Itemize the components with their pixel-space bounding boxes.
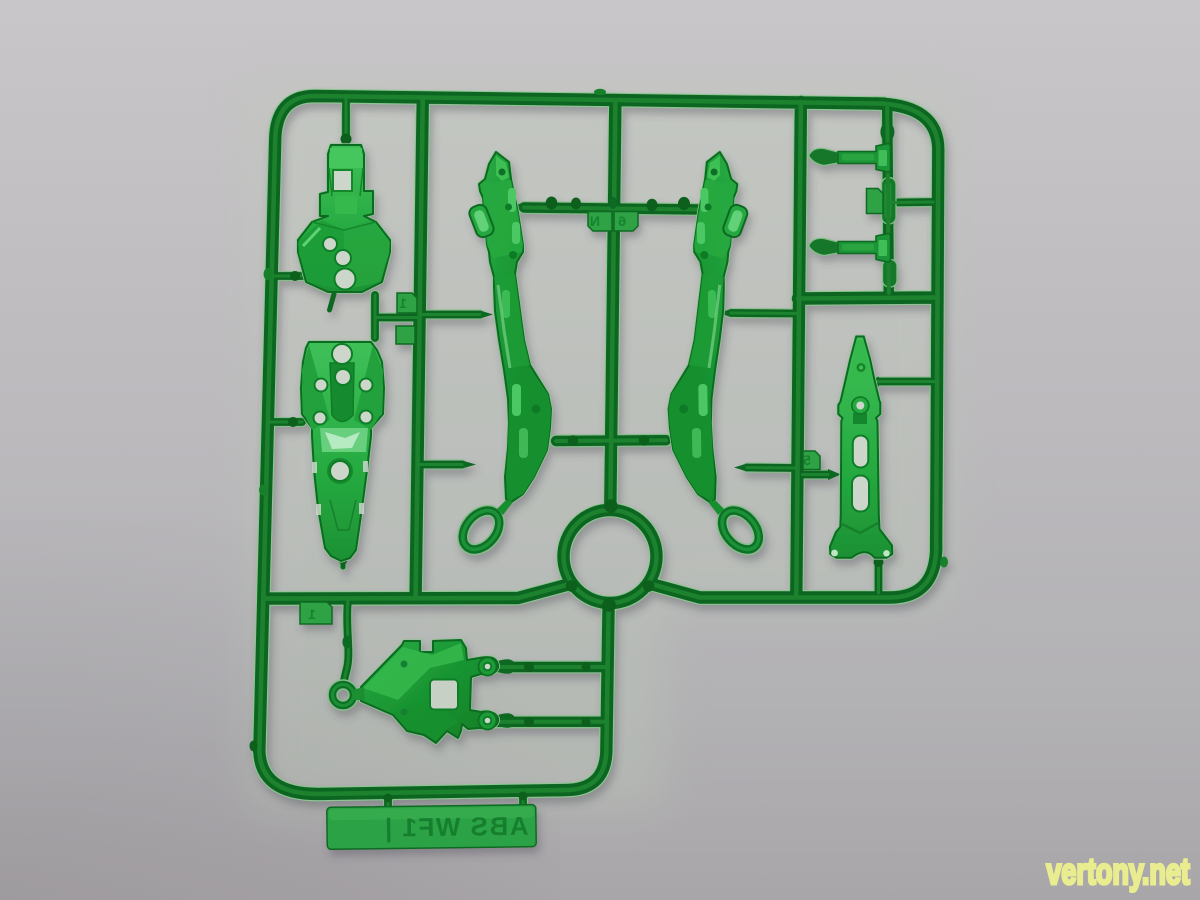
svg-text:1: 1 — [399, 295, 407, 311]
svg-text:1: 1 — [308, 606, 316, 622]
svg-text:vertony.net: vertony.net — [1046, 851, 1190, 892]
svg-text:5: 5 — [803, 452, 811, 468]
svg-text:ABS WF1 |: ABS WF1 | — [383, 811, 528, 843]
svg-text:N: N — [590, 213, 600, 229]
svg-text:6: 6 — [618, 213, 626, 229]
